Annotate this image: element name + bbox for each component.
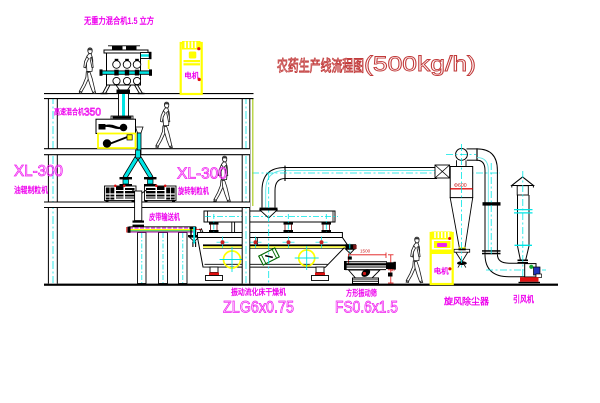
svg-text:振动流化床干燥机: 振动流化床干燥机 xyxy=(231,287,286,297)
svg-text:农药生产线流程图: 农药生产线流程图 xyxy=(277,57,364,75)
svg-text:皮带输送机: 皮带输送机 xyxy=(148,212,180,222)
svg-text:ZLG6x0.75: ZLG6x0.75 xyxy=(223,299,294,317)
svg-text:FS0.6x1.5: FS0.6x1.5 xyxy=(335,299,398,317)
svg-text:引风机: 引风机 xyxy=(513,294,534,305)
svg-text:无重力混合机1.5 立方: 无重力混合机1.5 立方 xyxy=(83,15,154,26)
svg-text:油辊制粒机: 油辊制粒机 xyxy=(14,185,48,195)
svg-text:XL-300: XL-300 xyxy=(177,166,227,183)
svg-text:XL-300: XL-300 xyxy=(14,163,63,180)
svg-text:旋转制粒机: 旋转制粒机 xyxy=(177,186,209,196)
svg-text:电机: 电机 xyxy=(184,70,199,80)
svg-text:(500kg/h): (500kg/h) xyxy=(364,52,476,76)
svg-text:1500: 1500 xyxy=(360,249,371,254)
svg-text:方形振动筛: 方形振动筛 xyxy=(346,288,377,298)
svg-text:旋风除尘器: 旋风除尘器 xyxy=(443,296,490,307)
svg-text:350: 350 xyxy=(84,107,101,119)
svg-text:电机: 电机 xyxy=(434,266,449,276)
svg-text:高速混合机: 高速混合机 xyxy=(54,107,84,117)
